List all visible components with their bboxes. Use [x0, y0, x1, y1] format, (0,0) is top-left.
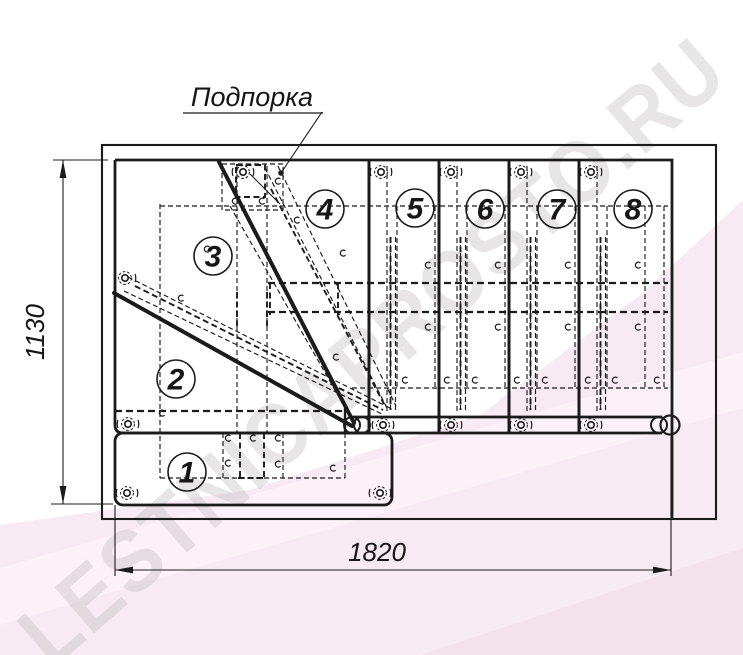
step-number: 5 — [407, 193, 425, 226]
step-number: 4 — [316, 194, 334, 227]
step-number: 8 — [625, 194, 642, 227]
bolt-icon — [370, 166, 392, 179]
step-number: 3 — [205, 241, 222, 274]
height-dimension-value: 1130 — [20, 304, 50, 360]
bolt-icon — [440, 166, 462, 179]
callout: Подпорка — [183, 82, 323, 176]
bolt-icon — [372, 419, 394, 432]
arrow-down — [60, 486, 67, 504]
attic-ladder-plan-drawing: LESTNICAPROSTO.RU — [0, 0, 743, 655]
height-dimension-lines — [51, 160, 113, 504]
step-number: 1 — [179, 457, 196, 490]
arrow-up — [60, 160, 67, 178]
step-number: 2 — [167, 364, 185, 397]
callout-leader — [281, 112, 322, 173]
callout-leader-dot — [278, 170, 284, 176]
bolt-icon — [114, 272, 136, 285]
step-number: 7 — [549, 194, 567, 227]
bolt-icon — [117, 418, 139, 431]
step-number: 6 — [477, 194, 494, 227]
width-dimension-value: 1820 — [348, 537, 406, 567]
drawing-canvas: LESTNICAPROSTO.RU — [0, 0, 743, 655]
callout-label: Подпорка — [191, 82, 313, 112]
